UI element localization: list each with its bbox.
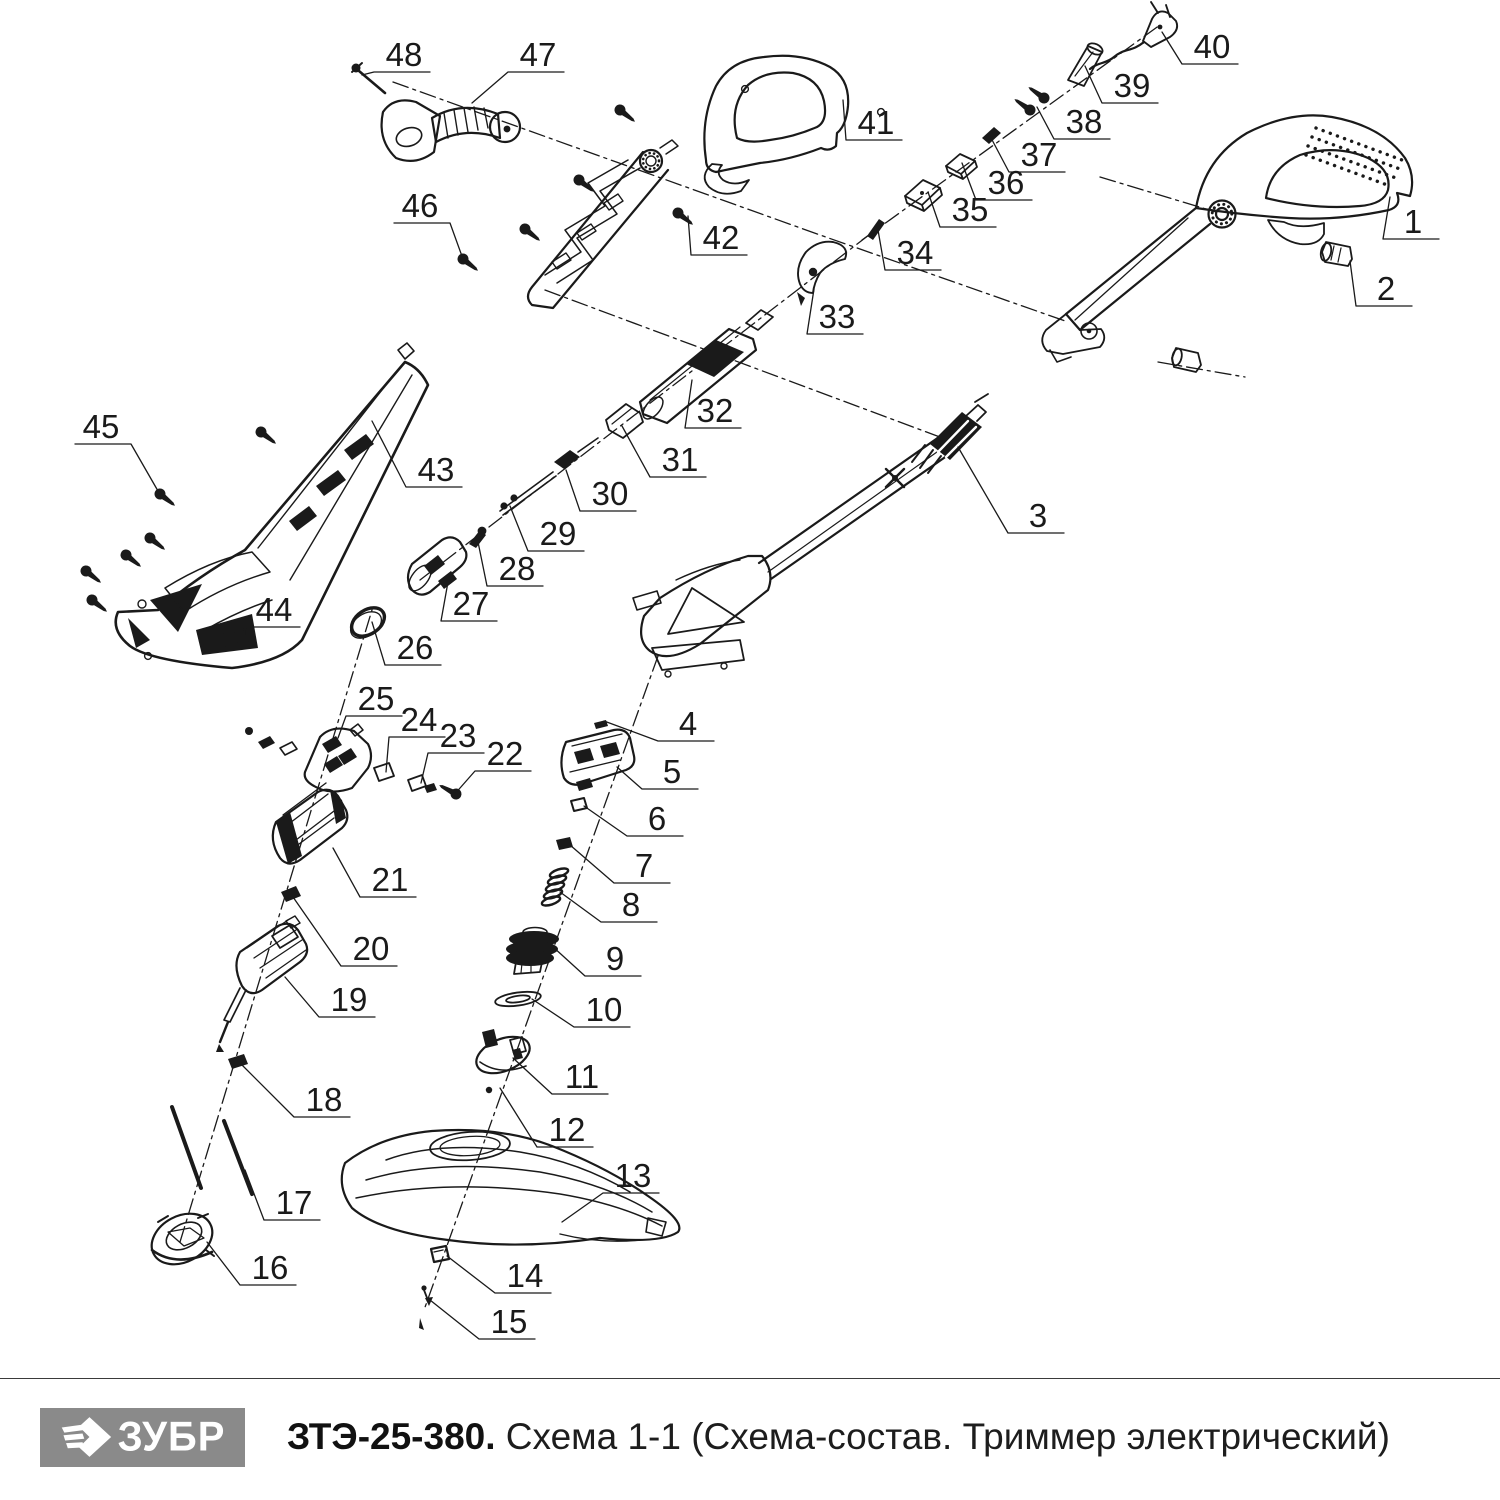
flex-shaft-part30 bbox=[500, 438, 598, 515]
lever-part33 bbox=[797, 242, 846, 306]
callout-part-38: 38 bbox=[1037, 103, 1110, 140]
callout-part-26: 26 bbox=[372, 622, 441, 666]
callout-part-19: 19 bbox=[285, 977, 375, 1018]
callout-part-46: 46 bbox=[394, 187, 463, 259]
brush-holder-part24 bbox=[374, 763, 394, 781]
svg-text:2: 2 bbox=[1377, 270, 1395, 307]
callout-part-45: 45 bbox=[75, 408, 158, 491]
page: 1234567891011121314151617181920212223242… bbox=[0, 0, 1500, 1500]
footer-divider bbox=[0, 1378, 1500, 1379]
screw-part45 bbox=[152, 486, 178, 510]
svg-text:17: 17 bbox=[276, 1184, 313, 1221]
exploded-diagram: 1234567891011121314151617181920212223242… bbox=[0, 0, 1500, 1380]
bracket-screws bbox=[455, 102, 696, 275]
drive-shaft-parts bbox=[346, 242, 846, 644]
callout-part-41: 41 bbox=[843, 100, 902, 141]
svg-text:18: 18 bbox=[306, 1081, 343, 1118]
callout-part-27: 27 bbox=[441, 582, 497, 622]
svg-text:46: 46 bbox=[402, 187, 439, 224]
callout-part-34: 34 bbox=[878, 230, 941, 271]
callout-layer: 1234567891011121314151617181920212223242… bbox=[75, 28, 1439, 1340]
svg-text:33: 33 bbox=[819, 298, 856, 335]
aux-handle-part47 bbox=[352, 63, 521, 161]
switch-parts bbox=[867, 2, 1177, 240]
svg-text:37: 37 bbox=[1021, 136, 1058, 173]
callout-part-7: 7 bbox=[570, 845, 670, 884]
svg-text:42: 42 bbox=[703, 219, 740, 256]
callout-part-32: 32 bbox=[685, 380, 741, 429]
rotor-part19 bbox=[216, 916, 307, 1052]
screw-part38b bbox=[1025, 83, 1051, 106]
callout-part-12: 12 bbox=[500, 1088, 593, 1148]
screw-part42 bbox=[670, 205, 696, 229]
svg-text:14: 14 bbox=[507, 1257, 544, 1294]
bushing-part18 bbox=[228, 1054, 248, 1069]
gear-housing-part5 bbox=[561, 730, 634, 791]
svg-text:39: 39 bbox=[1114, 67, 1151, 104]
callout-part-20: 20 bbox=[293, 897, 397, 967]
svg-text:13: 13 bbox=[615, 1157, 652, 1194]
ring-part7 bbox=[556, 837, 573, 850]
svg-text:32: 32 bbox=[697, 392, 734, 429]
screw-part48 bbox=[352, 63, 386, 93]
svg-text:9: 9 bbox=[606, 940, 624, 977]
pin-part34 bbox=[867, 219, 885, 240]
svg-text:28: 28 bbox=[499, 550, 536, 587]
svg-text:45: 45 bbox=[83, 408, 120, 445]
svg-text:29: 29 bbox=[540, 515, 577, 552]
callout-part-3: 3 bbox=[958, 447, 1064, 534]
callout-part-31: 31 bbox=[622, 426, 706, 478]
svg-text:1: 1 bbox=[1404, 203, 1422, 240]
housing-screws bbox=[78, 424, 279, 616]
rivet-part12 bbox=[486, 1087, 492, 1093]
svg-text:30: 30 bbox=[592, 475, 629, 512]
callout-part-14: 14 bbox=[447, 1256, 551, 1294]
callout-part-47: 47 bbox=[472, 36, 564, 103]
svg-text:47: 47 bbox=[520, 36, 557, 73]
svg-text:3: 3 bbox=[1029, 497, 1047, 534]
svg-text:26: 26 bbox=[397, 629, 434, 666]
svg-text:11: 11 bbox=[565, 1058, 599, 1095]
svg-text:4: 4 bbox=[679, 705, 697, 742]
callout-part-10: 10 bbox=[532, 991, 630, 1028]
callout-part-11: 11 bbox=[513, 1058, 608, 1095]
callout-part-33: 33 bbox=[807, 289, 863, 335]
callout-part-5: 5 bbox=[617, 753, 698, 790]
svg-text:27: 27 bbox=[453, 585, 490, 622]
svg-text:44: 44 bbox=[256, 591, 293, 628]
svg-text:43: 43 bbox=[418, 451, 455, 488]
screw-part46 bbox=[455, 251, 481, 275]
screw-part38a bbox=[1011, 95, 1037, 118]
svg-text:48: 48 bbox=[386, 36, 423, 73]
svg-text:36: 36 bbox=[988, 164, 1025, 201]
svg-text:38: 38 bbox=[1066, 103, 1103, 140]
svg-text:21: 21 bbox=[372, 861, 409, 898]
box-part35 bbox=[905, 180, 942, 211]
callout-part-18: 18 bbox=[240, 1063, 350, 1118]
svg-text:23: 23 bbox=[440, 717, 477, 754]
svg-text:15: 15 bbox=[491, 1303, 528, 1340]
zubr-logo-icon bbox=[60, 1413, 112, 1461]
callout-part-30: 30 bbox=[566, 470, 636, 512]
trimmer-line-part17 bbox=[172, 1107, 252, 1194]
svg-text:16: 16 bbox=[252, 1249, 289, 1286]
callout-part-24: 24 bbox=[386, 701, 445, 772]
fan-cover-part25 bbox=[305, 724, 371, 792]
callout-part-43: 43 bbox=[372, 421, 462, 488]
zubr-logo-text: ЗУБР bbox=[118, 1413, 226, 1460]
svg-text:31: 31 bbox=[662, 441, 699, 478]
svg-text:41: 41 bbox=[858, 104, 895, 141]
svg-text:24: 24 bbox=[401, 701, 438, 738]
callout-part-21: 21 bbox=[333, 848, 416, 898]
svg-text:10: 10 bbox=[586, 991, 623, 1028]
callout-part-42: 42 bbox=[688, 216, 747, 256]
schema-subtitle: Схема 1-1 (Схема-состав. Триммер электри… bbox=[496, 1416, 1390, 1457]
screw-part22 bbox=[437, 780, 464, 801]
svg-text:19: 19 bbox=[331, 981, 368, 1018]
svg-text:22: 22 bbox=[487, 735, 524, 772]
model-number: ЗТЭ-25-380. bbox=[287, 1416, 496, 1457]
callout-part-28: 28 bbox=[477, 537, 543, 587]
spool-holder-part11 bbox=[471, 1029, 535, 1080]
callout-part-17: 17 bbox=[245, 1170, 320, 1221]
spool-cover-part16 bbox=[143, 1204, 221, 1275]
svg-text:6: 6 bbox=[648, 800, 666, 837]
svg-text:12: 12 bbox=[549, 1111, 586, 1148]
stator-part21 bbox=[273, 783, 348, 864]
washer-part10 bbox=[494, 989, 541, 1008]
svg-text:5: 5 bbox=[663, 753, 681, 790]
footer: ЗУБР ЗТЭ-25-380. Схема 1-1 (Схема-состав… bbox=[40, 1404, 1460, 1470]
svg-text:40: 40 bbox=[1194, 28, 1231, 65]
callout-part-4: 4 bbox=[604, 705, 714, 742]
svg-text:34: 34 bbox=[897, 234, 934, 271]
callout-part-9: 9 bbox=[552, 940, 641, 977]
svg-text:25: 25 bbox=[358, 680, 395, 717]
callout-part-29: 29 bbox=[510, 506, 584, 552]
callout-part-39: 39 bbox=[1085, 66, 1158, 104]
spring-part8 bbox=[541, 867, 569, 908]
square-part14 bbox=[431, 1246, 449, 1262]
schema-title: ЗТЭ-25-380. Схема 1-1 (Схема-состав. Три… bbox=[287, 1416, 1390, 1458]
spool-hub-part9 bbox=[506, 928, 559, 975]
ring-part6 bbox=[571, 798, 587, 811]
callout-part-8: 8 bbox=[560, 886, 657, 923]
callout-part-48: 48 bbox=[362, 36, 430, 75]
svg-text:35: 35 bbox=[952, 191, 989, 228]
callout-part-15: 15 bbox=[430, 1300, 535, 1340]
callout-part-35: 35 bbox=[928, 191, 996, 228]
main-handle-part1 bbox=[1042, 115, 1412, 372]
bushing-part2 bbox=[1319, 242, 1352, 266]
zubr-logo: ЗУБР bbox=[40, 1408, 245, 1467]
callout-part-1: 1 bbox=[1383, 197, 1439, 240]
callout-part-16: 16 bbox=[207, 1242, 296, 1286]
lower-boom-part3 bbox=[633, 394, 988, 677]
svg-text:7: 7 bbox=[635, 847, 653, 884]
callout-part-2: 2 bbox=[1350, 261, 1412, 307]
callout-part-6: 6 bbox=[584, 800, 683, 837]
svg-text:8: 8 bbox=[622, 886, 640, 923]
svg-text:20: 20 bbox=[353, 930, 390, 967]
